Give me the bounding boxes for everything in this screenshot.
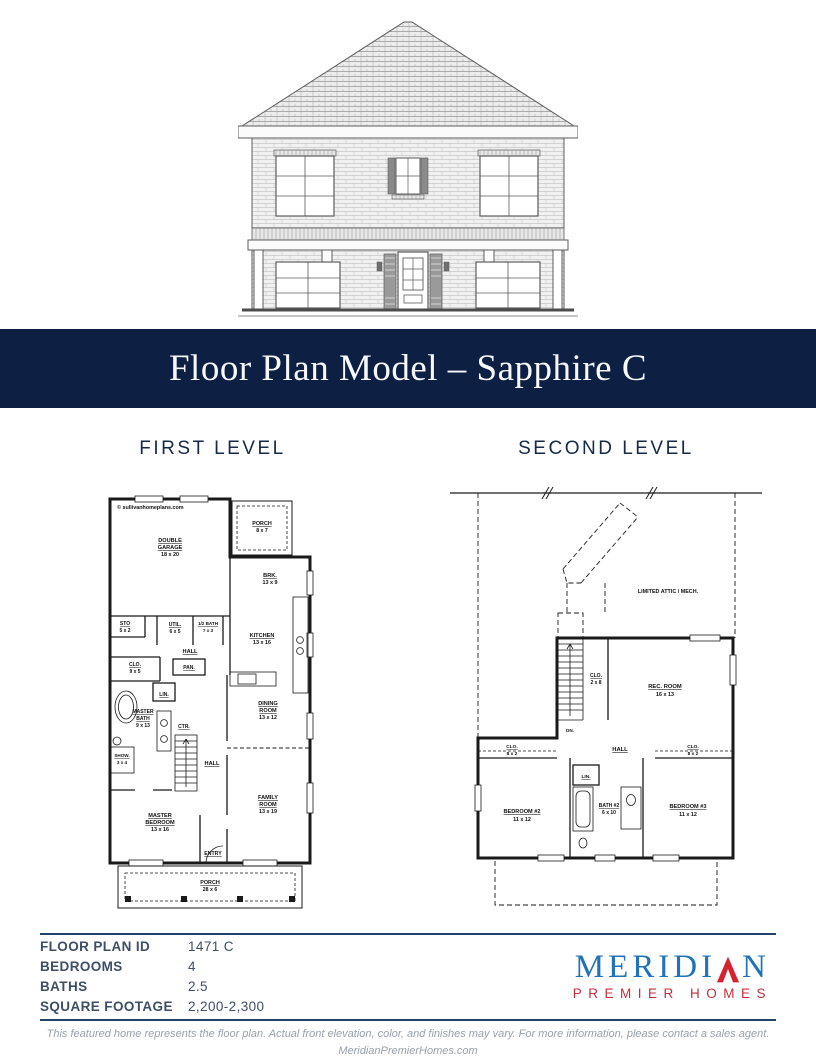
svg-text:BEDROOM: BEDROOM bbox=[145, 820, 175, 826]
second-level-stairs bbox=[557, 638, 583, 720]
spec-row-bedrooms: BEDROOMS 4 bbox=[40, 958, 264, 975]
room-label-pan: PAN. bbox=[183, 665, 195, 671]
lower-left-window bbox=[276, 262, 340, 308]
spec-label: SQUARE FOOTAGE bbox=[40, 998, 188, 1015]
upper-center-window bbox=[388, 158, 428, 199]
plan-watermark: © sullivanhomeplans.com bbox=[117, 504, 184, 511]
room-label-bedroom2: BEDROOM #2 bbox=[504, 809, 541, 815]
svg-text:11 x 12: 11 x 12 bbox=[513, 817, 531, 823]
second-level-heading: SECOND LEVEL bbox=[450, 438, 762, 460]
svg-text:13 x 9: 13 x 9 bbox=[263, 580, 278, 586]
svg-text:3 x 4: 3 x 4 bbox=[117, 760, 128, 765]
porch-lantern-icon bbox=[444, 262, 449, 271]
spec-row-square-footage: SQUARE FOOTAGE 2,200-2,300 bbox=[40, 998, 264, 1015]
room-label-family: FAMILY bbox=[258, 795, 278, 801]
room-label-clo-right: CLO. bbox=[687, 744, 698, 750]
spec-value: 2.5 bbox=[188, 978, 208, 995]
svg-text:13 x 16: 13 x 16 bbox=[151, 827, 169, 833]
svg-text:18 x 20: 18 x 20 bbox=[161, 552, 179, 558]
logo-text-start: MERIDI bbox=[575, 952, 716, 982]
room-label-lin: LIN. bbox=[159, 692, 169, 698]
svg-text:GARAGE: GARAGE bbox=[158, 545, 183, 551]
meridian-premier-homes-logo: MERIDI N PREMIER HOMES bbox=[573, 952, 776, 1001]
room-label-clo-stair: CLO. bbox=[590, 673, 603, 679]
room-label-master-bedroom: MASTER bbox=[148, 813, 172, 819]
svg-text:5 x 2: 5 x 2 bbox=[119, 628, 130, 634]
room-label-brk: BRK. bbox=[263, 573, 277, 579]
upper-right-window bbox=[480, 156, 538, 216]
room-label-clo-left: CLO. bbox=[506, 744, 517, 750]
upper-left-window bbox=[276, 156, 334, 216]
spec-label: BATHS bbox=[40, 978, 188, 995]
room-label-dining: DINING bbox=[258, 701, 278, 707]
room-label-kitchen: KITCHEN bbox=[250, 633, 275, 639]
spec-table: FLOOR PLAN ID 1471 C BEDROOMS 4 BATHS 2.… bbox=[40, 938, 264, 1015]
spec-value: 2,200-2,300 bbox=[188, 998, 264, 1015]
logo-text-end: N bbox=[742, 952, 770, 982]
svg-text:6 x 10: 6 x 10 bbox=[602, 810, 616, 816]
room-label-master-bath: MASTER bbox=[132, 709, 154, 715]
svg-text:16 x 13: 16 x 13 bbox=[656, 692, 674, 698]
details-strip: FLOOR PLAN ID 1471 C BEDROOMS 4 BATHS 2.… bbox=[40, 933, 776, 1021]
page-title: Floor Plan Model – Sapphire C bbox=[169, 347, 647, 390]
second-level-floor-plan: LIMITED ATTIC / MECH. CLO. 2 x 8 REC. RO… bbox=[450, 485, 762, 930]
room-label-util: UTIL. bbox=[169, 622, 182, 628]
svg-text:13 x 19: 13 x 19 bbox=[259, 809, 277, 815]
room-label-bath2: BATH #2 bbox=[599, 803, 620, 809]
first-level-floor-plan: © sullivanhomeplans.com DOUBLE GARAGE 18… bbox=[105, 485, 320, 915]
spec-row-floor-plan-id: FLOOR PLAN ID 1471 C bbox=[40, 938, 264, 955]
svg-text:2 x 8: 2 x 8 bbox=[590, 680, 601, 686]
spec-row-baths: BATHS 2.5 bbox=[40, 978, 264, 995]
first-level-heading: FIRST LEVEL bbox=[105, 438, 320, 460]
svg-text:13 x 16: 13 x 16 bbox=[253, 640, 271, 646]
logo-tagline: PREMIER HOMES bbox=[573, 986, 772, 1001]
svg-text:13 x 12: 13 x 12 bbox=[259, 715, 277, 721]
room-label-garage: DOUBLE bbox=[158, 538, 182, 544]
svg-text:6 x 5: 6 x 5 bbox=[169, 629, 180, 635]
room-label-front-porch: PORCH bbox=[200, 880, 220, 886]
room-label-clo: CLO. bbox=[129, 662, 142, 668]
svg-text:11 x 12: 11 x 12 bbox=[679, 812, 697, 818]
footer-disclaimer: This featured home represents the floor … bbox=[0, 1026, 816, 1056]
elevation-roof bbox=[238, 22, 578, 138]
svg-text:28 x 6: 28 x 6 bbox=[203, 887, 218, 893]
title-banner: Floor Plan Model – Sapphire C bbox=[0, 329, 816, 408]
flyer-page: Floor Plan Model – Sapphire C FIRST LEVE… bbox=[0, 0, 816, 1056]
svg-text:8 x 2: 8 x 2 bbox=[688, 751, 699, 757]
logo-wordmark: MERIDI N bbox=[575, 952, 770, 982]
room-label-hall: HALL bbox=[612, 747, 628, 753]
room-label-rear-porch: PORCH bbox=[252, 521, 272, 527]
room-label-sto: STO bbox=[120, 621, 130, 627]
spec-label: BEDROOMS bbox=[40, 958, 188, 975]
stairs-dn-label: DN. bbox=[566, 728, 574, 733]
svg-text:7 x 3: 7 x 3 bbox=[203, 628, 214, 633]
room-label-lin: LIN. bbox=[581, 774, 590, 780]
svg-text:ROOM: ROOM bbox=[259, 802, 277, 808]
svg-text:8 x 2: 8 x 2 bbox=[507, 751, 518, 757]
svg-text:9 x 13: 9 x 13 bbox=[136, 723, 150, 729]
house-elevation-drawing bbox=[238, 12, 578, 320]
lower-right-window bbox=[476, 262, 540, 308]
room-label-shower: SHOW. bbox=[114, 753, 129, 758]
website-text: MeridianPremierHomes.com bbox=[0, 1043, 816, 1056]
room-label-hall-lower: HALL bbox=[205, 761, 220, 767]
first-level-stairs bbox=[175, 735, 197, 791]
elevation-first-story bbox=[238, 228, 578, 316]
room-label-hall-upper: HALL bbox=[183, 649, 198, 655]
entry-door bbox=[377, 252, 449, 310]
second-level-walls bbox=[450, 487, 762, 905]
svg-text:8 x 7: 8 x 7 bbox=[256, 528, 268, 534]
logo-arrow-icon bbox=[716, 956, 740, 983]
spec-label: FLOOR PLAN ID bbox=[40, 938, 188, 955]
room-label-bedroom3: BEDROOM #3 bbox=[670, 804, 707, 810]
attic-label: LIMITED ATTIC / MECH. bbox=[638, 589, 699, 595]
first-level-walls bbox=[110, 496, 313, 908]
elevation-second-story bbox=[252, 138, 564, 228]
porch-lantern-icon bbox=[377, 262, 382, 271]
room-label-half-bath: 1/2 BATH bbox=[198, 621, 219, 626]
spec-value: 1471 C bbox=[188, 938, 234, 955]
svg-text:9 x 5: 9 x 5 bbox=[129, 669, 140, 675]
room-label-rec-room: REC. ROOM bbox=[648, 684, 682, 690]
disclaimer-text: This featured home represents the floor … bbox=[0, 1026, 816, 1043]
spec-value: 4 bbox=[188, 958, 196, 975]
room-label-entry: ENTRY bbox=[204, 851, 222, 857]
svg-text:ROOM: ROOM bbox=[259, 708, 277, 714]
svg-text:BATH: BATH bbox=[136, 716, 150, 722]
room-label-ctr: CTR. bbox=[178, 724, 190, 730]
